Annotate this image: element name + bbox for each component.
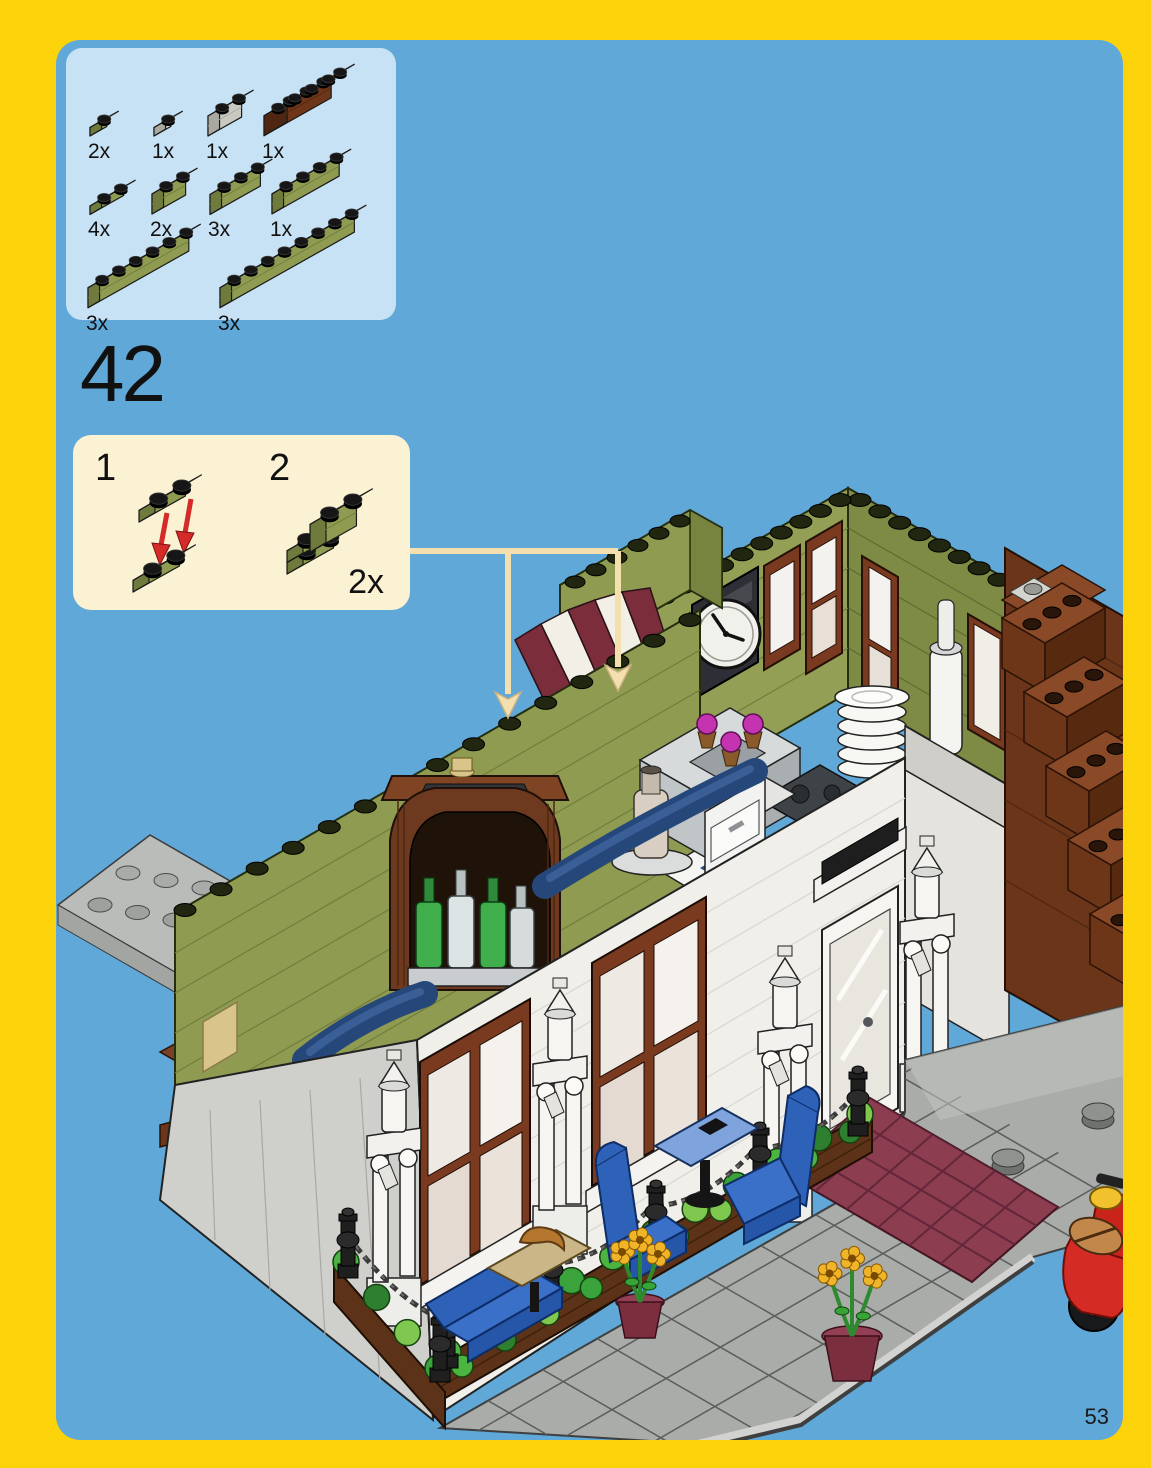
model-illustration (56, 40, 1123, 1440)
rear-window (806, 521, 842, 674)
instruction-sheet: 2x1x1x1x4x2x3x1x3x3x 42 1 2 2x (56, 40, 1123, 1440)
manual-page: { "page": { "step": "42", "number": "53"… (0, 0, 1151, 1468)
staircase-brown (1002, 548, 1123, 1060)
rear-window (764, 545, 800, 670)
page-number: 53 (1085, 1404, 1109, 1430)
rear-window (968, 614, 1006, 751)
